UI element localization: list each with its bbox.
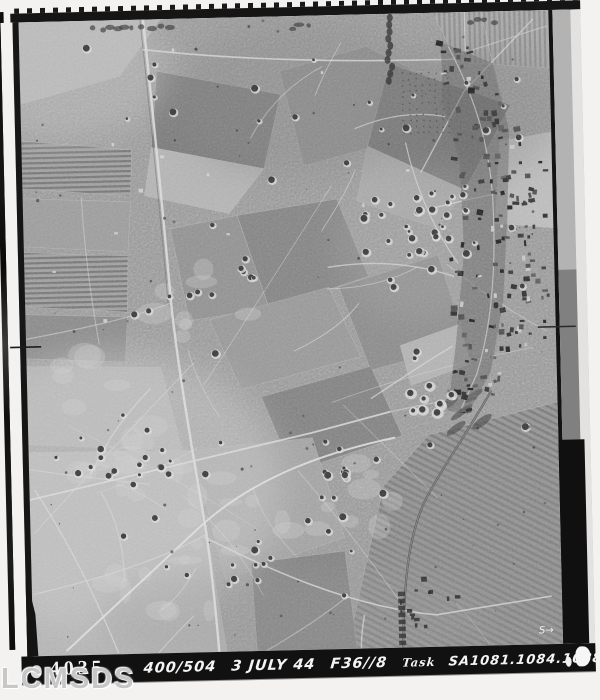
scanned-aerial-photo-page: S→ 4035 400/504 3 JULY 44 F36//8 Task SA…	[0, 0, 600, 700]
camera-code: F36//8	[330, 655, 388, 672]
aerial-photo: S→	[0, 9, 595, 656]
mission-date: 3 JULY 44	[231, 657, 317, 675]
sortie-number: 400/504	[143, 659, 217, 677]
photo-print: S→ 4035 400/504 3 JULY 44 F36//8 Task SA…	[0, 0, 596, 685]
caption-blob-small	[566, 657, 572, 667]
fiducial-s-label: S→	[539, 625, 554, 636]
lcmsds-watermark: LCMSDS	[1, 663, 135, 696]
right-border-lower	[558, 439, 589, 644]
task-label: Task	[402, 655, 437, 670]
aerial-photo-canvas: S→	[0, 9, 595, 656]
